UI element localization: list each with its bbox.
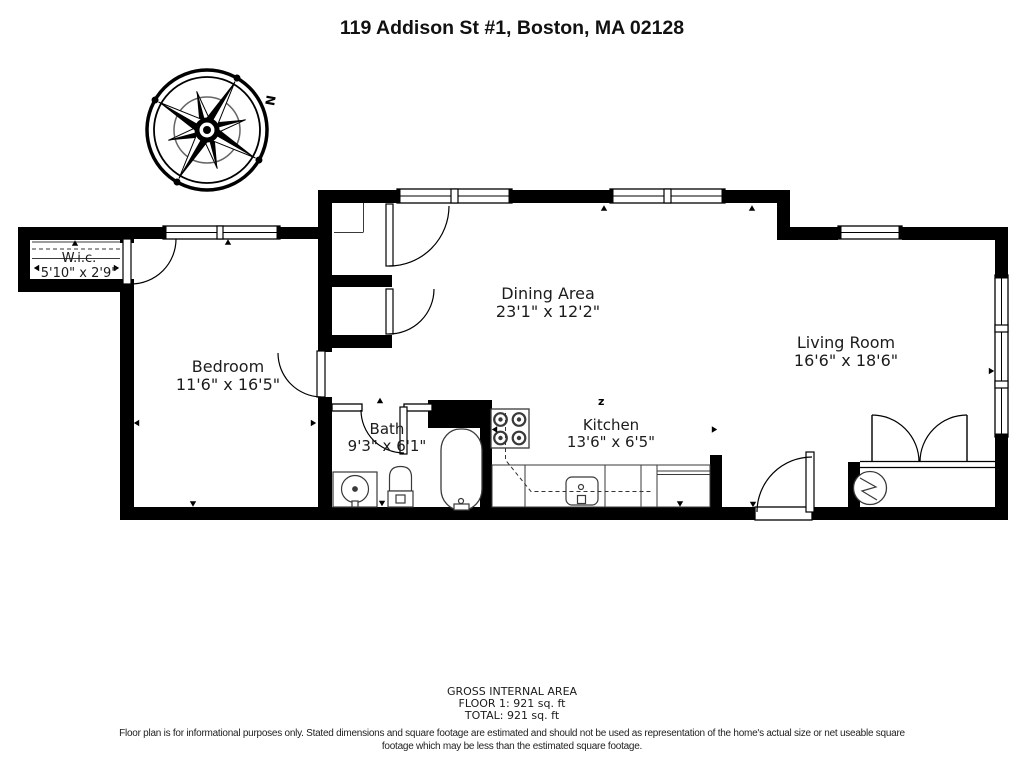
room-name: Dining Area [496,285,600,303]
disclaimer-text: Floor plan is for informational purposes… [118,728,906,753]
toilet [388,467,413,508]
compass-rose-icon: N [147,70,279,190]
room-dimensions: 11'6" x 16'5" [176,376,280,394]
room-label-living-room: Living Room 16'6" x 18'6" [794,334,898,370]
room-dimensions: 5'10" x 2'9" [41,267,117,282]
living-room-top-window [838,226,902,239]
room-label-wic: W.i.c. 5'10" x 2'9" [41,252,117,281]
room-label-kitchen: Kitchen 13'6" x 6'5" [567,417,655,451]
room-label-bath: Bath 9'3" x 6'1" [348,421,427,455]
area-summary-total: TOTAL: 921 sq. ft [0,710,1024,722]
bedroom-door [278,351,325,397]
wic-door [123,239,176,284]
room-label-bedroom: Bedroom 11'6" x 16'5" [176,358,280,394]
bathroom-sink [333,472,377,507]
compass-north-label: N [262,94,279,107]
dining-closet-door-1 [386,204,449,266]
fixtures [32,203,887,510]
room-name: Bath [348,421,427,438]
closet-shelf [334,203,364,233]
dining-window-1 [397,189,512,203]
bedroom-window [163,226,280,239]
water-heater [854,472,887,505]
room-name: W.i.c. [41,252,117,267]
room-label-dining-area: Dining Area 23'1" x 12'2" [496,285,600,321]
dining-closet-door-2 [386,289,434,334]
room-name: Kitchen [567,417,655,434]
living-closet-double-doors [860,415,995,468]
room-dimensions: 23'1" x 12'2" [496,303,600,321]
room-name: Bedroom [176,358,280,376]
floor-plan-page: 119 Addison St #1, Boston, MA 02128 [0,0,1024,768]
kitchen-counter [492,465,710,507]
room-dimensions: 9'3" x 6'1" [348,438,427,455]
bathtub [441,429,482,510]
area-summary: GROSS INTERNAL AREA FLOOR 1: 921 sq. ft … [0,686,1024,722]
living-room-side-window [995,275,1008,437]
room-dimensions: 13'6" x 6'5" [567,434,655,451]
dining-window-2 [610,189,725,203]
room-dimensions: 16'6" x 18'6" [794,352,898,370]
floor-plan-drawing: N [0,0,1024,768]
switch-symbol: z [598,395,604,408]
room-name: Living Room [794,334,898,352]
entry-door [757,452,814,512]
